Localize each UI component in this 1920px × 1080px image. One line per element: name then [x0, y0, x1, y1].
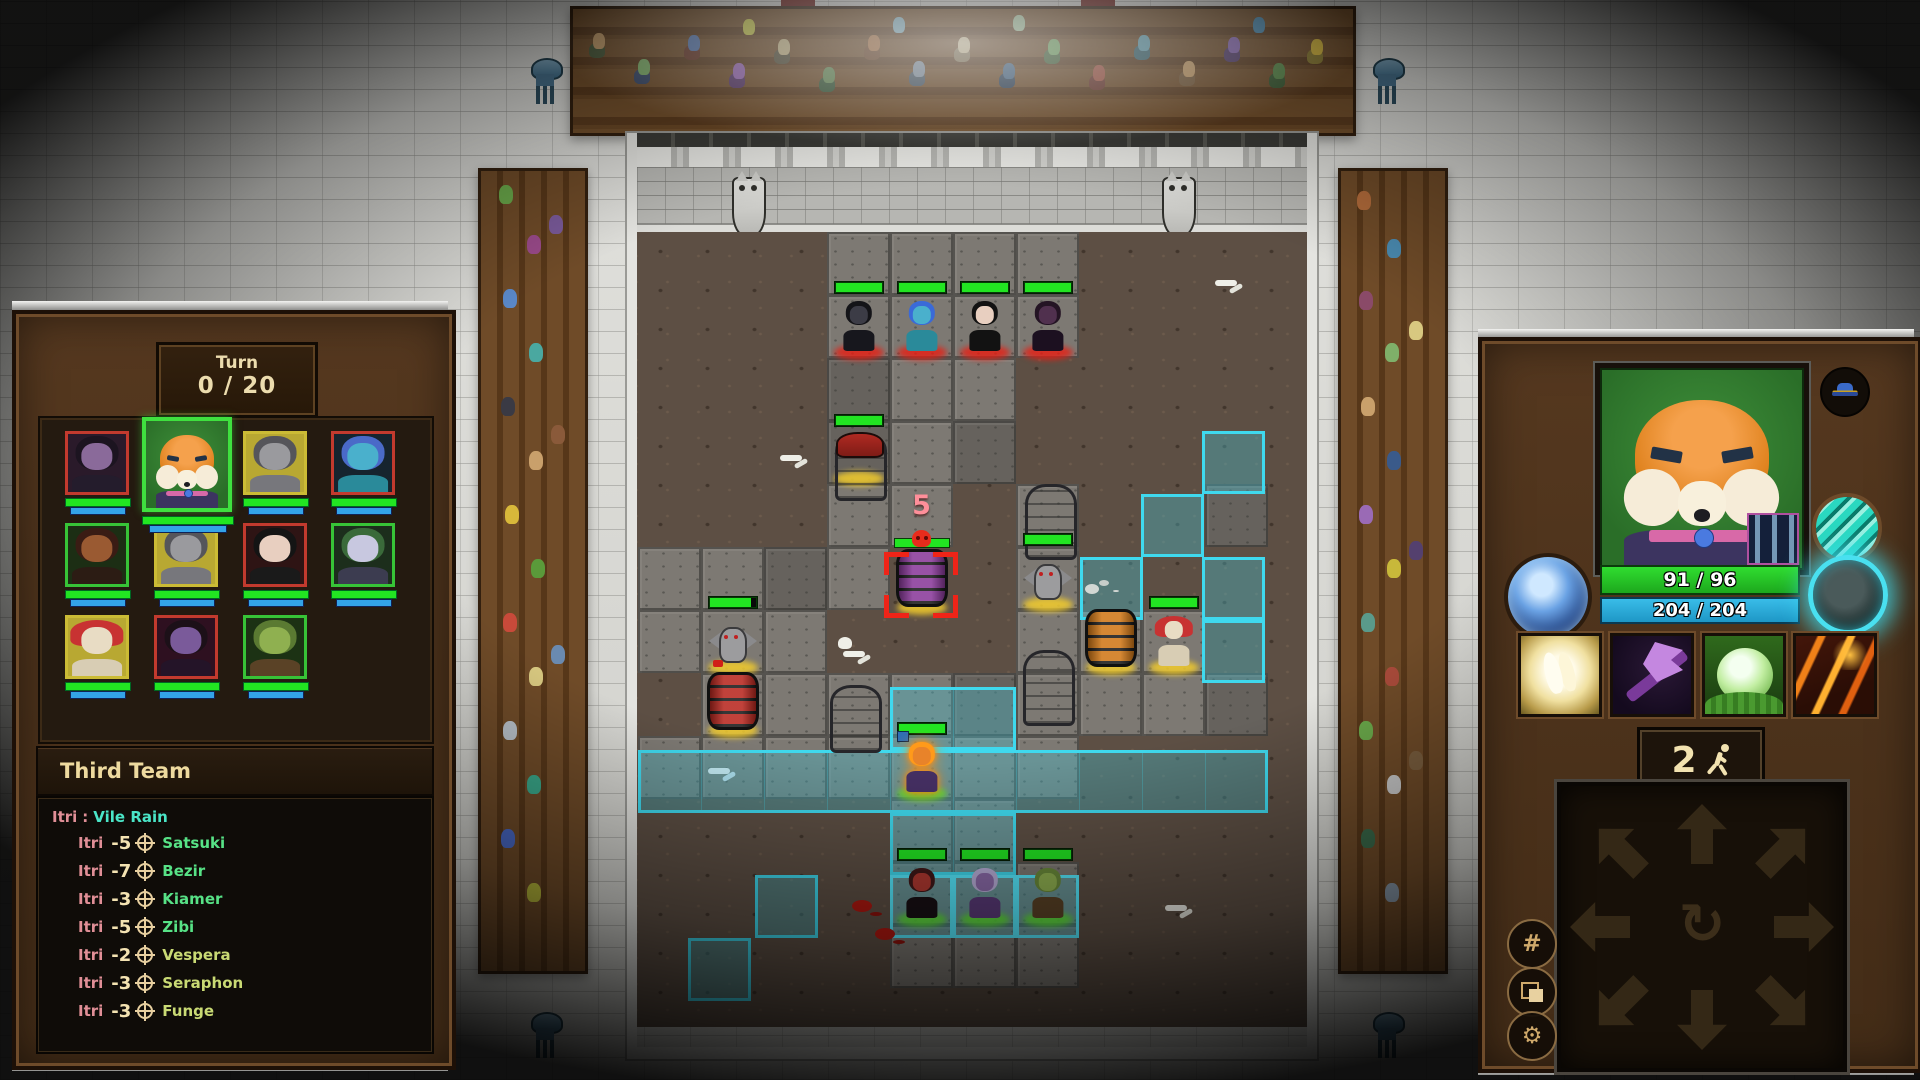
movement-tile[interactable]: [1202, 431, 1265, 494]
equipment-hat-button[interactable]: [1820, 367, 1870, 417]
arrow-down-icon[interactable]: [1677, 990, 1727, 1050]
log-entry: Itri-2 Vespera: [78, 944, 231, 966]
enemy-blue-troll-woman[interactable]: [890, 295, 953, 358]
team-header: Third Team: [36, 746, 434, 796]
spectator-stand-top: [570, 6, 1356, 136]
mushroom-man[interactable]: [1142, 610, 1205, 673]
ability-healing-hands[interactable]: [1518, 633, 1602, 717]
layers-button[interactable]: [1507, 967, 1557, 1017]
arrow-up-right-icon[interactable]: [1745, 811, 1823, 889]
arrow-up-icon[interactable]: [1677, 804, 1727, 864]
roster-portrait-mushroom-man[interactable]: [65, 615, 129, 679]
spirit-orb-icon[interactable]: [1504, 553, 1592, 641]
roster-portrait-pale-elf[interactable]: [331, 523, 395, 587]
spectator-crowd: [499, 185, 513, 204]
turn-label: Turn: [159, 353, 315, 373]
attack-target-corners: [884, 552, 958, 618]
gargoyle-center[interactable]: [1016, 547, 1079, 610]
spectator-stand-right: [1338, 168, 1448, 974]
damage-value: 5: [912, 490, 931, 521]
direction-pad: ↻: [1557, 782, 1847, 1072]
arena-floor: 5: [637, 232, 1307, 1027]
cyan-ring-orb-icon[interactable]: [1808, 555, 1888, 635]
ally-purple-troll-mage[interactable]: [953, 862, 1016, 925]
team-name: Third Team: [60, 759, 191, 783]
combat-log: Itri : Vile Rain Itri-5 Satsuki Itri-7 B…: [36, 796, 434, 1054]
stone-pillar: [1023, 650, 1075, 726]
crosshair-icon: [137, 947, 153, 963]
settings-button[interactable]: ⚙: [1507, 1011, 1557, 1061]
brazier: [1370, 1006, 1404, 1062]
blue-hat-icon: [1832, 383, 1858, 399]
status-effect-card[interactable]: [1747, 513, 1799, 565]
battle-arena: 5: [627, 133, 1317, 1059]
crosshair-icon: [137, 891, 153, 907]
brazier: [1370, 52, 1404, 108]
ally-green-orc[interactable]: [1016, 862, 1079, 925]
roster-portrait-blue-troll-woman[interactable]: [331, 431, 395, 495]
arrow-down-right-icon[interactable]: [1745, 965, 1823, 1043]
bones-decal: [708, 768, 730, 774]
hero-portrait: [1595, 363, 1809, 575]
death-skull-icon: [912, 530, 931, 547]
ability-eruption[interactable]: [1793, 633, 1877, 717]
movement-tile[interactable]: [688, 938, 751, 1001]
ability-shadow-axe[interactable]: [1610, 633, 1694, 717]
enemy-purple-demon-cat[interactable]: [1016, 295, 1079, 358]
rotate-icon[interactable]: ↻: [1679, 892, 1726, 957]
blood-decal: [875, 928, 895, 940]
movement-tile[interactable]: [1202, 620, 1265, 683]
bone-decal: [843, 651, 865, 657]
movement-tile[interactable]: [1202, 557, 1265, 620]
spectator-stand-left: [478, 168, 588, 974]
roster-portrait-black-haired-woman[interactable]: [243, 523, 307, 587]
panel-trim: [12, 301, 448, 310]
log-entry: Itri-3 Seraphon: [78, 972, 243, 994]
ally-fox-hero-selected[interactable]: [890, 736, 953, 799]
enemy-shadow-cat[interactable]: [827, 295, 890, 358]
arrow-left-icon[interactable]: [1570, 902, 1630, 952]
ability-life-sphere[interactable]: [1702, 633, 1786, 717]
red-cap-statue[interactable]: [827, 421, 890, 484]
gargoyle-statue-icon: [732, 177, 766, 237]
movement-range-row[interactable]: [638, 750, 1268, 813]
roster-portrait-green-orc[interactable]: [243, 615, 307, 679]
hp-bar: 91 / 96: [1600, 565, 1800, 595]
orange-barrel[interactable]: [1079, 610, 1142, 673]
movement-tile[interactable]: [1141, 494, 1204, 557]
log-entry: Itri-5 Zibi: [78, 916, 194, 938]
bones-decal: [1215, 280, 1237, 286]
striped-shield-orb-icon[interactable]: [1812, 493, 1882, 563]
gargoyle-statue-icon: [1162, 177, 1196, 237]
roster-portrait-purple-cat-woman[interactable]: [65, 431, 129, 495]
crosshair-icon: [137, 919, 153, 935]
brazier: [528, 1006, 562, 1062]
log-cast-line: Itri : Vile Rain: [52, 806, 168, 828]
arrow-right-icon[interactable]: [1774, 902, 1834, 952]
movement-tile[interactable]: [755, 875, 818, 938]
shield-bar: 204 / 204: [1600, 597, 1800, 624]
log-entry: Itri-3 Kiamer: [78, 888, 222, 910]
layers-icon: [1521, 982, 1543, 1002]
roster-portrait-gray-bat[interactable]: [243, 431, 307, 495]
grid-toggle-button[interactable]: #: [1507, 919, 1557, 969]
log-entry: Itri-3 Funge: [78, 1000, 214, 1022]
crosshair-icon: [137, 863, 153, 879]
log-entry: Itri-5 Satsuki: [78, 832, 225, 854]
red-barrel[interactable]: [701, 673, 764, 736]
shield-value: 204 / 204: [1653, 600, 1747, 621]
arrow-up-left-icon[interactable]: [1581, 811, 1659, 889]
brazier: [528, 52, 562, 108]
settings-gear-icon: ⚙: [1522, 1023, 1543, 1049]
right-character-panel: 91 / 96 204 / 204 2 ↻: [1478, 337, 1920, 1073]
roster-portrait-fox-hero-selected[interactable]: [142, 417, 232, 512]
blood-decal: [852, 900, 872, 912]
turn-counter: Turn 0 / 20: [156, 342, 318, 418]
bones-decal: [780, 455, 802, 461]
left-team-panel: Turn 0 / 20: [12, 310, 456, 1070]
roster-portrait-purple-demon[interactable]: [154, 615, 218, 679]
crosshair-icon: [137, 1003, 153, 1019]
moves-value: 2: [1671, 740, 1696, 781]
enemy-black-haired-woman[interactable]: [953, 295, 1016, 358]
runner-icon: [1707, 744, 1731, 776]
arena-wall: [637, 133, 1307, 232]
gargoyle-left[interactable]: [701, 610, 764, 673]
crosshair-icon: [137, 975, 153, 991]
smoke-decal: [1085, 584, 1099, 594]
log-entry: Itri-7 Bezir: [78, 860, 205, 882]
spectator-crowd: [1357, 191, 1371, 210]
damage-preview: 5: [890, 490, 953, 521]
arrow-down-left-icon[interactable]: [1581, 965, 1659, 1043]
roster-portrait-horned-dark-elf[interactable]: [65, 523, 129, 587]
tombstone: [830, 685, 882, 753]
game-screen: 5: [0, 0, 1920, 1080]
turn-value: 0 / 20: [159, 373, 315, 399]
hp-value: 91 / 96: [1663, 569, 1736, 591]
crosshair-icon: [137, 835, 153, 851]
ally-red-demon-woman[interactable]: [890, 862, 953, 925]
skull-decal: [838, 637, 852, 649]
bones-decal: [1165, 905, 1187, 911]
spectator-crowd: [593, 33, 605, 49]
grid-icon: #: [1522, 931, 1541, 957]
